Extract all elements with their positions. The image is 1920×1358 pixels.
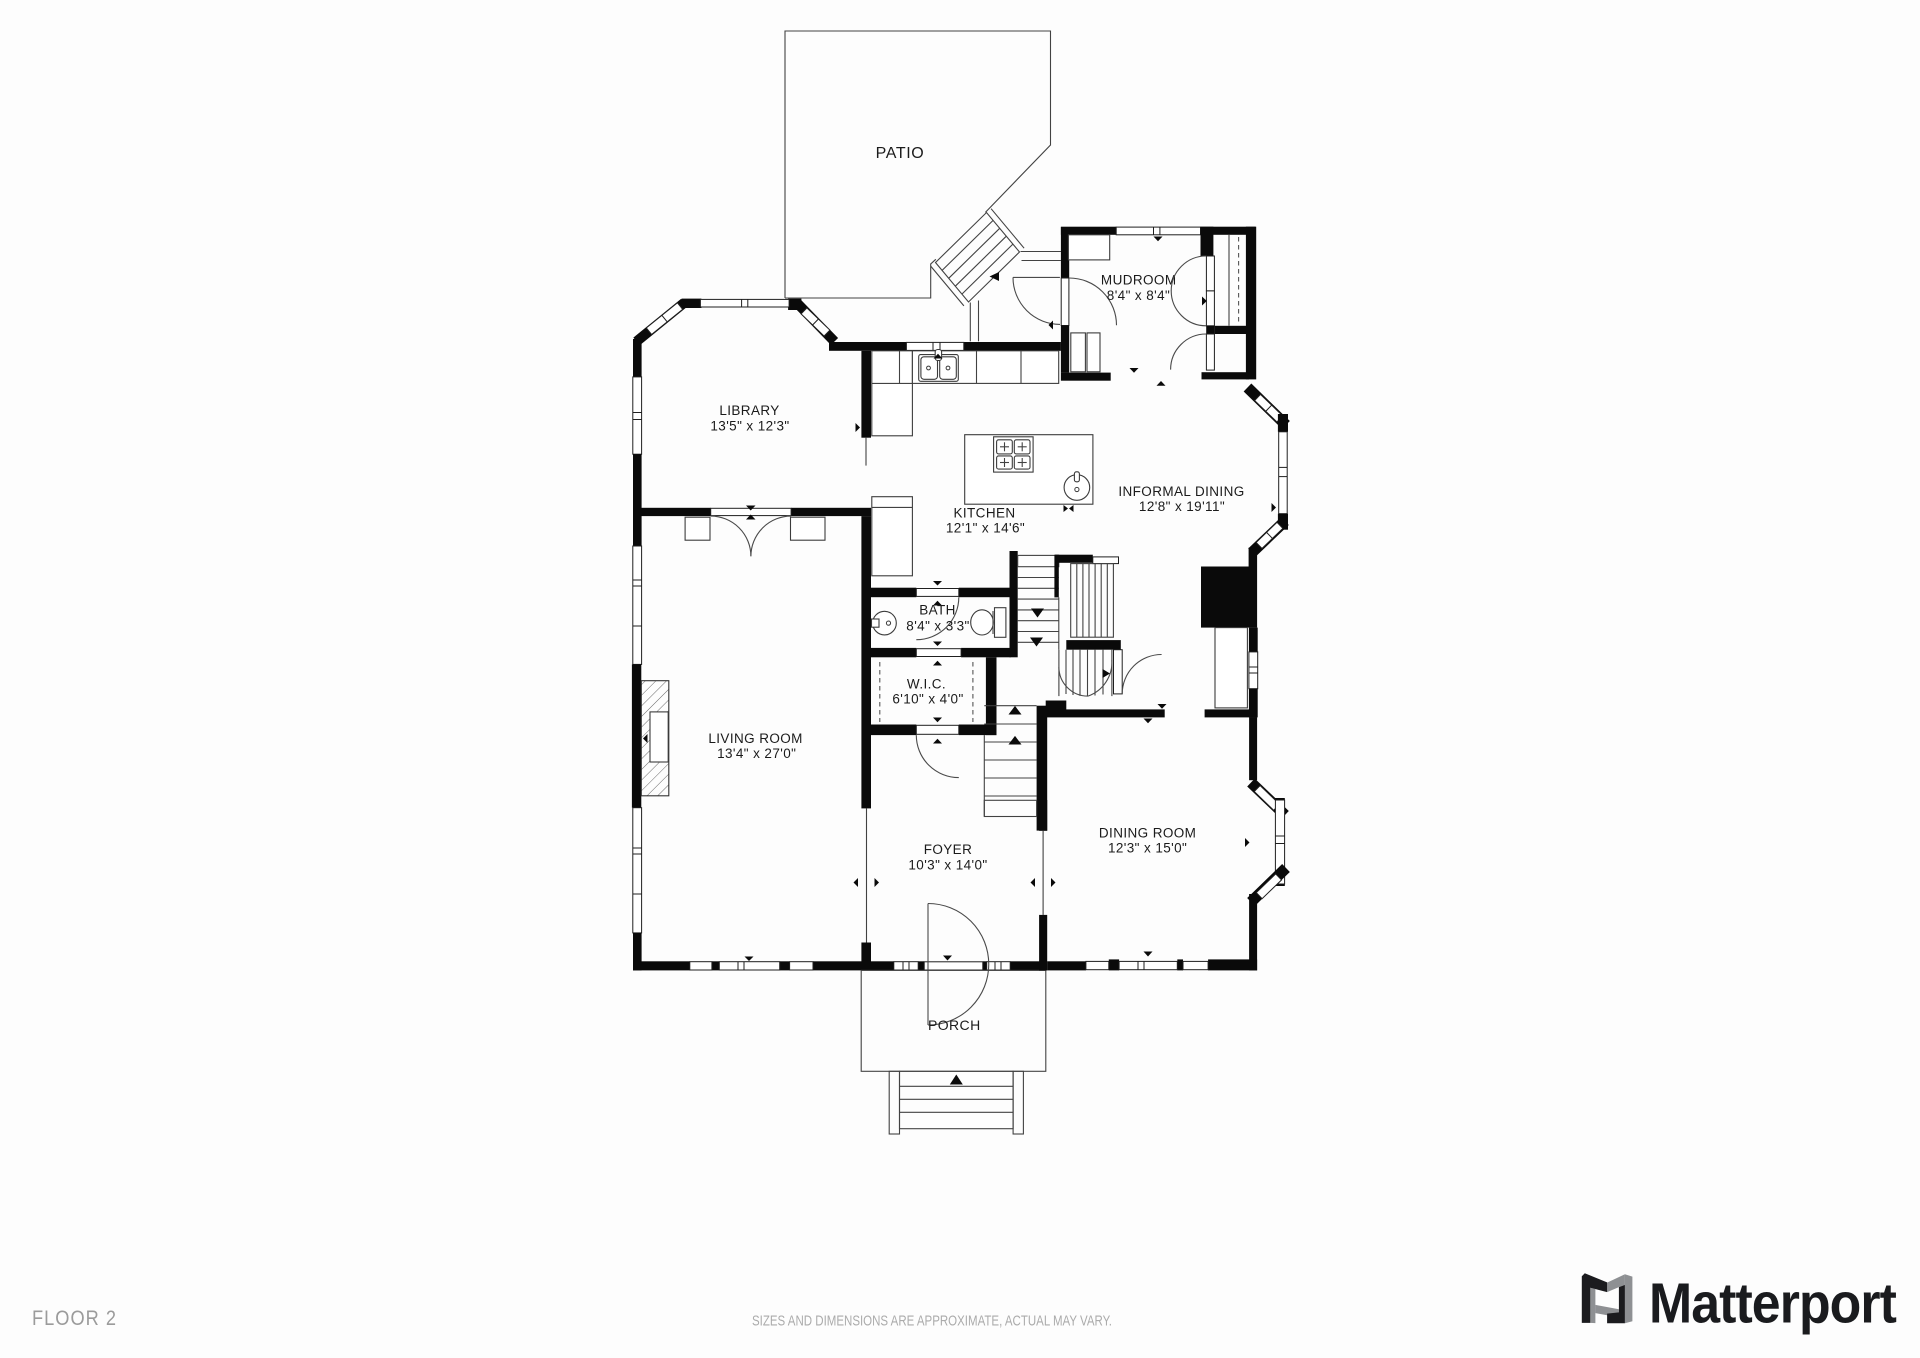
svg-text:FOYER: FOYER <box>924 842 973 857</box>
svg-text:SIZES AND DIMENSIONS ARE APPRO: SIZES AND DIMENSIONS ARE APPROXIMATE, AC… <box>752 1313 1112 1330</box>
svg-text:KITCHEN: KITCHEN <box>953 506 1015 521</box>
svg-text:8'4" x 3'3": 8'4" x 3'3" <box>906 619 969 634</box>
svg-text:DINING ROOM: DINING ROOM <box>1099 826 1196 841</box>
svg-text:8'4" x 8'4": 8'4" x 8'4" <box>1107 288 1170 303</box>
svg-text:LIBRARY: LIBRARY <box>719 403 779 418</box>
svg-text:13'4" x 27'0": 13'4" x 27'0" <box>717 746 796 761</box>
svg-text:BATH: BATH <box>919 603 956 618</box>
svg-text:12'3" x 15'0": 12'3" x 15'0" <box>1108 841 1187 856</box>
svg-text:PORCH: PORCH <box>928 1017 981 1033</box>
svg-text:FLOOR 2: FLOOR 2 <box>32 1306 117 1330</box>
svg-text:W.I.C.: W.I.C. <box>907 677 946 692</box>
svg-text:PATIO: PATIO <box>876 145 925 162</box>
svg-text:10'3" x 14'0": 10'3" x 14'0" <box>908 858 987 873</box>
svg-text:13'5" x 12'3": 13'5" x 12'3" <box>710 419 789 434</box>
svg-text:12'1" x 14'6": 12'1" x 14'6" <box>946 521 1025 536</box>
svg-text:MUDROOM: MUDROOM <box>1101 273 1177 288</box>
svg-text:12'8" x 19'11": 12'8" x 19'11" <box>1139 499 1225 514</box>
svg-text:INFORMAL DINING: INFORMAL DINING <box>1118 484 1244 499</box>
svg-text:Matterport: Matterport <box>1649 1272 1897 1335</box>
svg-text:6'10" x 4'0": 6'10" x 4'0" <box>892 692 963 707</box>
svg-text:LIVING ROOM: LIVING ROOM <box>708 731 802 746</box>
